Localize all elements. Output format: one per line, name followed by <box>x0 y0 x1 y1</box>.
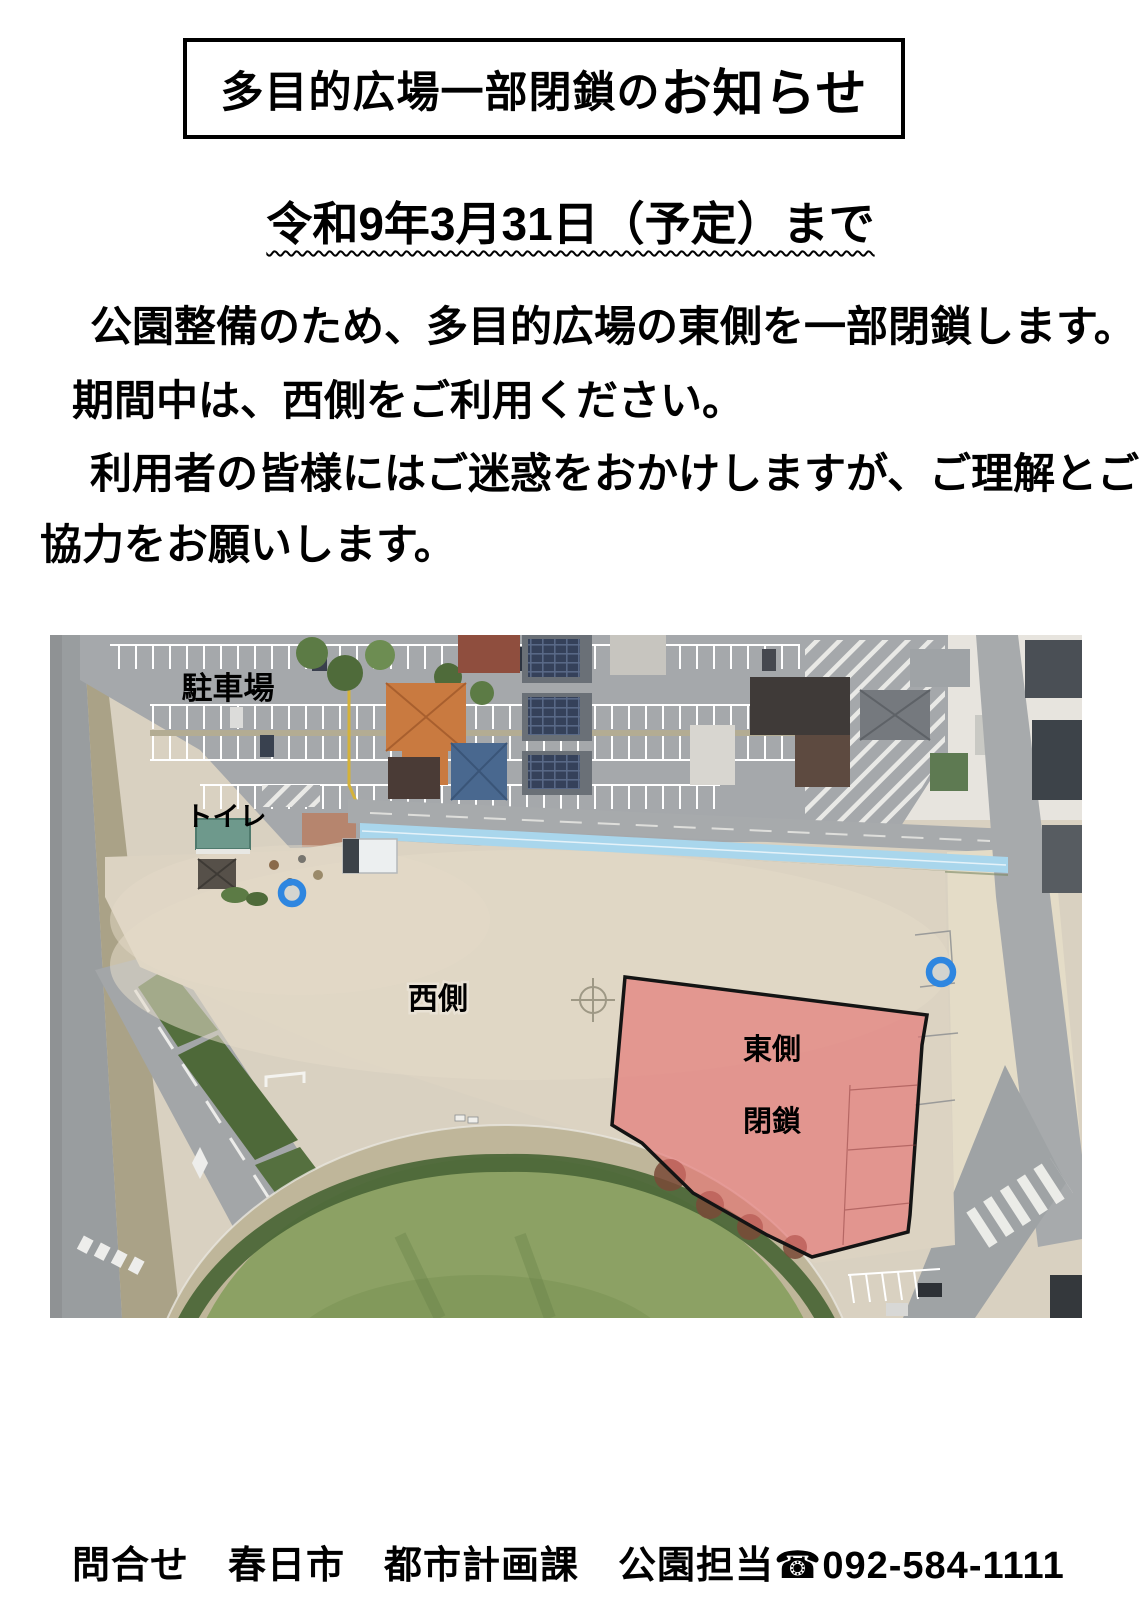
closed-label: 閉鎖 <box>743 1104 801 1138</box>
toilet-label: トイレ <box>186 802 267 832</box>
aerial-photo-svg: 東側 閉鎖 駐車場 トイレ 西側 <box>50 635 1082 1318</box>
notice-title-emphasis: お知らせ <box>661 52 868 126</box>
footer-phone-number: 092-584-1111 <box>822 1545 1064 1587</box>
parking-label: 駐車場 <box>182 671 275 706</box>
notice-title-box: 多目的広場一部閉鎖のお知らせ <box>183 38 905 139</box>
body-line-1: 公園整備のため、多目的広場の東側を一部閉鎖します。 <box>40 303 1141 351</box>
footer-contact-text: 問合せ 春日市 都市計画課 公園担当 <box>72 1545 774 1587</box>
notice-title-prefix: 多目的広場一部閉鎖の <box>221 58 661 120</box>
body-line-2: 期間中は、西側をご利用ください。 <box>40 377 1141 425</box>
footer-contact-line: 問合せ 春日市 都市計画課 公園担当☎092-584-1111 <box>72 1534 1065 1589</box>
marker-blue-ring-west <box>281 882 303 904</box>
closure-period-text: 令和9年3月31日（予定）まで <box>266 198 874 250</box>
east-side-label: 東側 <box>743 1033 801 1066</box>
closure-period-line: 令和9年3月31日（予定）まで <box>0 188 1141 254</box>
marker-blue-ring-east <box>929 960 953 984</box>
body-line-4: 協力をお願いします。 <box>40 521 1125 569</box>
body-line-3: 利用者の皆様にはご迷惑をおかけしますが、ご理解とご <box>40 450 1141 498</box>
solar-houses <box>522 635 592 795</box>
west-side-label: 西側 <box>408 983 468 1016</box>
phone-icon: ☎ <box>774 1545 822 1587</box>
aerial-photo: 東側 閉鎖 駐車場 トイレ 西側 <box>50 635 1082 1318</box>
notice-page: { "notice": { "title_prefix": "多目的広場一部閉鎖… <box>0 0 1141 1612</box>
